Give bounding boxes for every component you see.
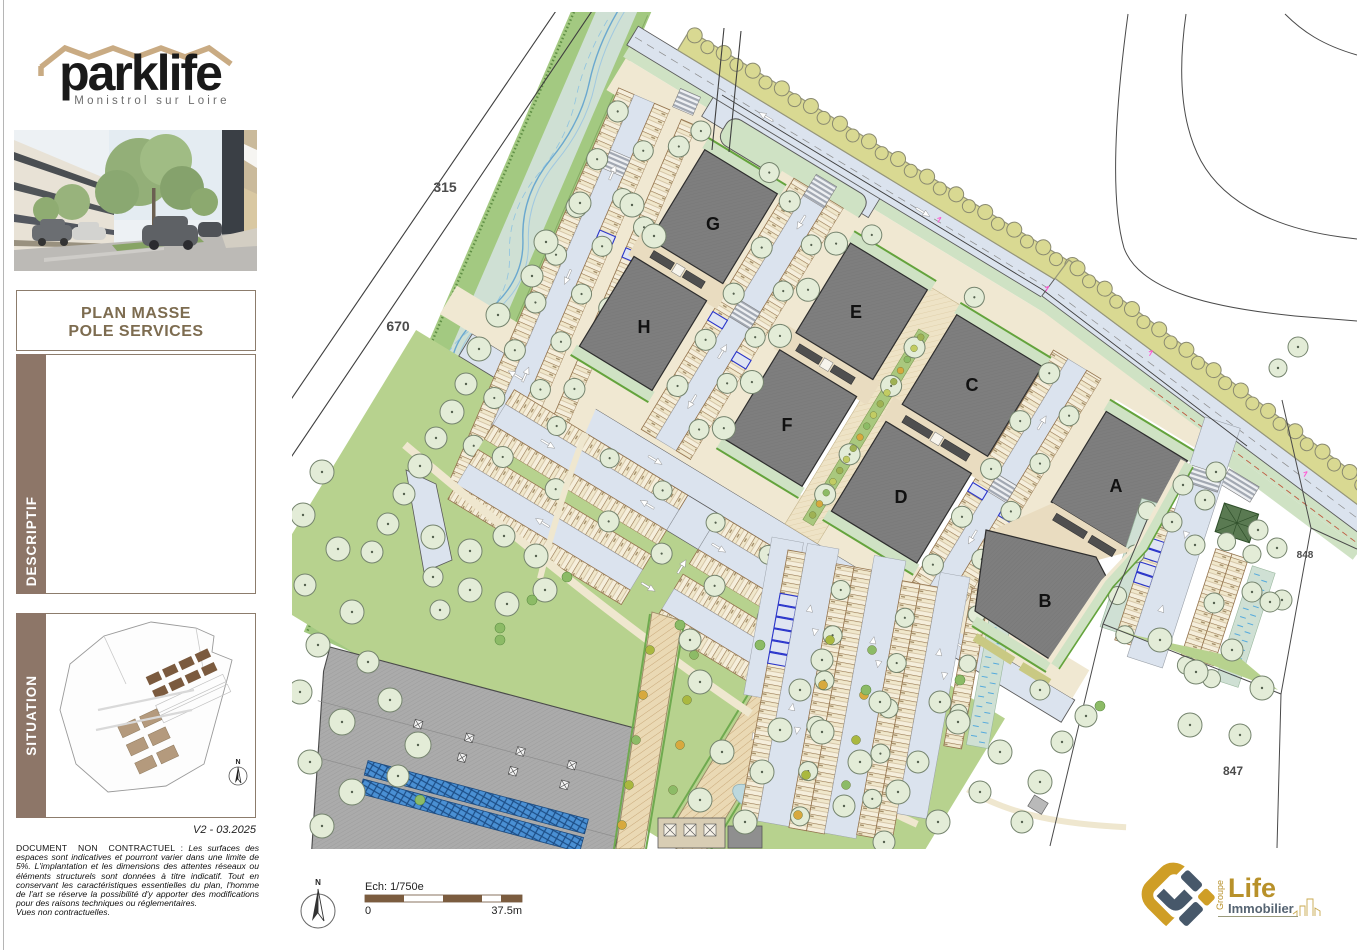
svg-text:parklife: parklife — [59, 45, 222, 101]
svg-text:H: H — [638, 317, 651, 337]
svg-text:848: 848 — [1297, 550, 1314, 561]
svg-text:670: 670 — [386, 318, 410, 334]
svg-text:Ech: 1/750e: Ech: 1/750e — [365, 881, 424, 893]
svg-text:D: D — [895, 487, 908, 507]
svg-text:Immobilier: Immobilier — [1228, 901, 1294, 916]
svg-text:37.5m: 37.5m — [491, 905, 522, 917]
svg-text:F: F — [782, 415, 793, 435]
svg-text:N: N — [315, 878, 321, 887]
svg-text:A: A — [1110, 476, 1123, 496]
svg-text:Monistrol sur Loire: Monistrol sur Loire — [74, 95, 229, 107]
svg-text:G: G — [706, 214, 720, 234]
svg-text:Groupe: Groupe — [1215, 880, 1225, 910]
svg-text:B: B — [1039, 591, 1052, 611]
svg-text:0: 0 — [365, 905, 371, 917]
svg-text:N: N — [235, 759, 240, 766]
svg-text:847: 847 — [1223, 764, 1243, 778]
svg-text:E: E — [850, 302, 862, 322]
svg-text:Life: Life — [1228, 873, 1276, 903]
svg-text:315: 315 — [433, 179, 457, 195]
svg-text:C: C — [966, 375, 979, 395]
